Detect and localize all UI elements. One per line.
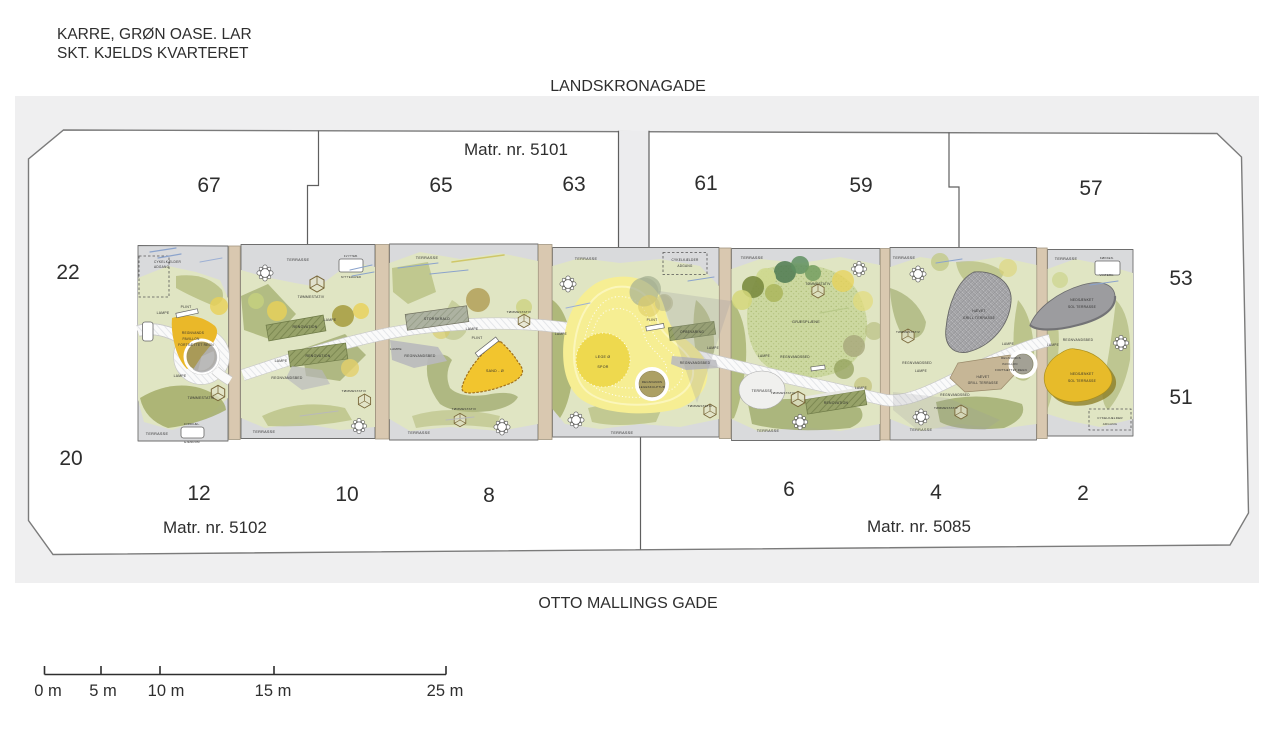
svg-text:TØMMESTATIV: TØMMESTATIV <box>771 391 796 395</box>
svg-text:TERRASSE: TERRASSE <box>575 257 598 261</box>
svg-text:10: 10 <box>335 483 358 506</box>
svg-text:Matr. nr. 5085: Matr. nr. 5085 <box>867 517 971 536</box>
svg-text:LAMPE: LAMPE <box>1002 342 1014 346</box>
svg-text:VINTERH.: VINTERH. <box>1099 273 1114 277</box>
svg-text:RENOVATION: RENOVATION <box>305 354 330 358</box>
svg-text:SOL TERRASSE: SOL TERRASSE <box>1068 379 1097 383</box>
svg-text:REGNVANDS: REGNVANDS <box>182 331 204 335</box>
svg-text:TERRASSE: TERRASSE <box>416 256 439 260</box>
svg-text:TØMMESTATIV: TØMMESTATIV <box>188 396 215 400</box>
svg-text:15 m: 15 m <box>255 682 292 700</box>
svg-text:PLINT: PLINT <box>647 318 658 322</box>
svg-text:4: 4 <box>930 481 942 504</box>
svg-text:67: 67 <box>197 174 220 197</box>
svg-text:LAMPE: LAMPE <box>466 327 479 331</box>
svg-text:LAMPE: LAMPE <box>555 332 567 336</box>
svg-text:TERRASSE: TERRASSE <box>1055 257 1078 261</box>
svg-text:ADGANG: ADGANG <box>677 264 693 268</box>
svg-text:TØMMESTATIV: TØMMESTATIV <box>452 407 477 411</box>
svg-text:22: 22 <box>56 261 79 284</box>
svg-text:NEDSÆNKET: NEDSÆNKET <box>1070 298 1094 302</box>
svg-text:ADGANG: ADGANG <box>1103 422 1118 426</box>
svg-text:TØMMESTATIV: TØMMESTATIV <box>507 310 532 314</box>
svg-text:TØMMESTATIV: TØMMESTATIV <box>934 406 958 410</box>
svg-text:LEGESKULPTUR: LEGESKULPTUR <box>639 385 665 389</box>
svg-text:TØMMESTATIV: TØMMESTATIV <box>342 389 367 393</box>
svg-text:TØMMESTATIV: TØMMESTATIV <box>688 404 713 408</box>
svg-text:LANDSKRONAGADE: LANDSKRONAGADE <box>550 78 706 95</box>
svg-text:REGNVANDSBED: REGNVANDSBED <box>940 393 970 397</box>
svg-text:LAMPE: LAMPE <box>275 359 288 363</box>
svg-text:LAMPE: LAMPE <box>174 374 187 378</box>
svg-text:FLYTTEB.: FLYTTEB. <box>344 254 358 258</box>
svg-text:GRILL TERRASSE: GRILL TERRASSE <box>968 381 999 385</box>
svg-text:TERRASSE: TERRASSE <box>408 431 431 435</box>
svg-text:JORDKÆL.: JORDKÆL. <box>184 422 201 426</box>
svg-text:Matr. nr. 5101: Matr. nr. 5101 <box>464 140 568 159</box>
svg-text:TERRASSE: TERRASSE <box>741 256 764 260</box>
svg-text:PAVILLON: PAVILLON <box>1002 362 1017 366</box>
svg-text:PLINT: PLINT <box>181 305 192 309</box>
svg-text:5 m: 5 m <box>89 682 117 700</box>
svg-text:59: 59 <box>849 174 872 197</box>
svg-text:57: 57 <box>1079 177 1102 200</box>
svg-text:REGNVANDSBED: REGNVANDSBED <box>271 376 302 380</box>
svg-text:LAMPE: LAMPE <box>324 318 337 322</box>
svg-text:65: 65 <box>429 174 452 197</box>
svg-text:TERRASSE: TERRASSE <box>611 431 634 435</box>
svg-text:REGNVANDS: REGNVANDS <box>642 380 662 384</box>
svg-text:REGNVANDSBED: REGNVANDSBED <box>680 361 711 365</box>
svg-text:TERRASSE: TERRASSE <box>287 258 310 262</box>
svg-text:Matr. nr. 5102: Matr. nr. 5102 <box>163 518 267 537</box>
svg-text:6: 6 <box>783 478 795 501</box>
svg-text:LAMPE: LAMPE <box>707 346 719 350</box>
svg-text:RENOVATION: RENOVATION <box>292 325 317 329</box>
svg-text:63: 63 <box>562 173 585 196</box>
svg-text:SOL TERRASSE: SOL TERRASSE <box>1068 305 1097 309</box>
svg-text:LAMPE: LAMPE <box>1047 343 1059 347</box>
svg-text:TERRASSE: TERRASSE <box>752 389 773 393</box>
svg-text:TØMMESTATIV: TØMMESTATIV <box>805 282 831 286</box>
svg-text:61: 61 <box>694 172 717 195</box>
svg-text:LAMPE: LAMPE <box>157 311 170 315</box>
svg-text:8: 8 <box>483 484 495 507</box>
svg-text:FORTSÆTTET REGN: FORTSÆTTET REGN <box>178 343 214 347</box>
svg-text:LAMPE: LAMPE <box>915 369 927 373</box>
svg-text:REGNVANDSBED: REGNVANDSBED <box>902 361 932 365</box>
svg-text:CYKELKÆLDER: CYKELKÆLDER <box>154 260 181 264</box>
svg-text:TERRASSE: TERRASSE <box>253 430 276 434</box>
svg-text:OPBEVARING: OPBEVARING <box>680 330 704 334</box>
svg-text:TERRASSE: TERRASSE <box>893 256 916 260</box>
svg-text:0 m: 0 m <box>34 682 62 700</box>
svg-text:REGNVANDSBED: REGNVANDSBED <box>780 355 810 359</box>
svg-text:FORTSÆTTET REGN: FORTSÆTTET REGN <box>995 368 1027 372</box>
svg-text:TERRASSE: TERRASSE <box>910 428 933 432</box>
svg-text:TERRASSE: TERRASSE <box>757 429 780 433</box>
svg-text:SKT. KJELDS KVARTERET: SKT. KJELDS KVARTERET <box>57 45 249 62</box>
svg-text:REGNVANDS: REGNVANDS <box>1001 356 1021 360</box>
svg-text:TØMMESTATIV: TØMMESTATIV <box>896 330 920 334</box>
svg-text:KØKKEN.: KØKKEN. <box>1100 256 1114 260</box>
svg-text:CYKELKÆLDER: CYKELKÆLDER <box>1097 416 1123 420</box>
svg-text:SPOR: SPOR <box>597 365 608 369</box>
svg-text:53: 53 <box>1169 267 1192 290</box>
svg-text:TERRASSE: TERRASSE <box>146 432 169 436</box>
svg-text:10 m: 10 m <box>148 682 185 700</box>
svg-text:NYTTEHAVER: NYTTEHAVER <box>341 275 361 279</box>
svg-text:EJENDOM: EJENDOM <box>184 440 200 444</box>
svg-text:20: 20 <box>59 447 82 470</box>
svg-text:REGNVANDSBED: REGNVANDSBED <box>1063 338 1094 342</box>
svg-text:LAMPE: LAMPE <box>855 386 867 390</box>
svg-text:25 m: 25 m <box>427 682 464 700</box>
svg-text:STORSKRALD: STORSKRALD <box>424 317 450 321</box>
svg-text:LAMPE: LAMPE <box>758 354 770 358</box>
svg-text:RENOVATION: RENOVATION <box>824 401 849 405</box>
svg-text:OTTO MALLINGS GADE: OTTO MALLINGS GADE <box>538 595 717 612</box>
svg-text:LAMPE: LAMPE <box>390 347 402 351</box>
svg-text:2: 2 <box>1077 482 1089 505</box>
svg-text:CYKELKÆLDER: CYKELKÆLDER <box>671 258 698 262</box>
svg-text:HÆVET: HÆVET <box>977 375 990 379</box>
svg-text:PAVILLON: PAVILLON <box>182 337 200 341</box>
svg-text:GRILL TERRASSE: GRILL TERRASSE <box>963 316 996 320</box>
svg-text:ADGANG: ADGANG <box>154 265 170 269</box>
svg-text:51: 51 <box>1169 386 1192 409</box>
svg-text:REGNVANDSBED: REGNVANDSBED <box>404 354 435 358</box>
svg-text:GRÆSPLÆNE: GRÆSPLÆNE <box>792 320 820 324</box>
svg-text:HÆVET: HÆVET <box>972 309 986 313</box>
svg-text:LEGE Ø: LEGE Ø <box>596 355 611 359</box>
svg-text:KARRE, GRØN OASE. LAR: KARRE, GRØN OASE. LAR <box>57 26 252 43</box>
svg-text:TØMMESTATIV: TØMMESTATIV <box>298 295 325 299</box>
svg-text:NEDSÆNKET: NEDSÆNKET <box>1070 372 1094 376</box>
svg-text:SAND - Ø: SAND - Ø <box>486 369 504 373</box>
svg-text:PLINT: PLINT <box>472 336 483 340</box>
svg-text:12: 12 <box>187 482 210 505</box>
